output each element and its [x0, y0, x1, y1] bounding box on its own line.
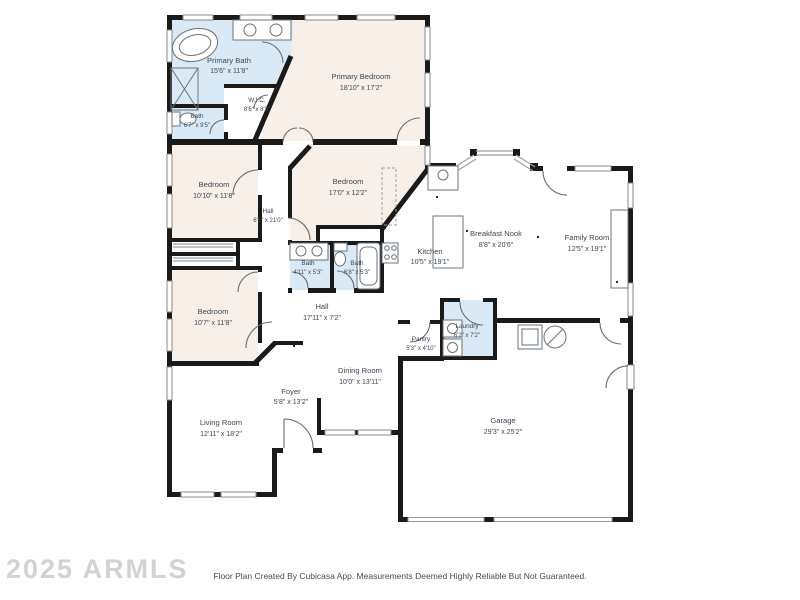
window — [167, 319, 172, 351]
label-laundry-dims: 6'2" x 7'2" — [454, 333, 480, 339]
label-family-room-name: Family Room — [565, 233, 610, 242]
toilet-icon — [172, 112, 180, 126]
garage-door — [408, 518, 484, 522]
window — [305, 15, 338, 20]
label-kitchen-dims: 10'5" x 19'1" — [411, 259, 450, 266]
label-bath-a-name: Bath — [301, 260, 315, 267]
window — [167, 194, 172, 228]
label-garage-name: Garage — [490, 416, 515, 425]
label-bath-b-name: Bath — [350, 260, 364, 267]
window — [357, 15, 395, 20]
label-foyer-dims: 5'8" x 13'2" — [274, 399, 309, 406]
label-hall-2-name: Hall — [315, 302, 328, 311]
service-door — [627, 365, 634, 389]
window — [575, 166, 611, 171]
window — [325, 430, 355, 435]
label-primary-bath-dims: 15'6" x 11'8" — [210, 68, 248, 75]
door-icon — [600, 323, 621, 344]
label-living-room-name: Living Room — [200, 418, 242, 427]
label-kitchen-name: Kitchen — [417, 247, 442, 256]
window — [181, 492, 214, 497]
label-pantry-name: Pantry — [412, 336, 431, 343]
window — [425, 27, 430, 60]
window — [183, 15, 213, 20]
label-bedroom-3-name: Bedroom — [198, 307, 229, 316]
footer-disclaimer: Floor Plan Created By Cubicasa App. Meas… — [0, 571, 800, 581]
garage-door — [494, 518, 612, 522]
label-foyer-name: Foyer — [281, 387, 301, 396]
label-laundry-name: Laundry — [455, 323, 479, 330]
label-breakfast-nook-dims: 8'8" x 20'6" — [479, 242, 514, 249]
toilet-icon — [334, 243, 347, 251]
room-bedroom-1 — [171, 144, 258, 238]
label-hall-2-dims: 17'11" x 7'2" — [303, 315, 341, 322]
label-bedroom-2-name: Bedroom — [333, 177, 364, 186]
label-bedroom-3-dims: 10'7" x 11'8" — [194, 320, 232, 327]
window — [628, 183, 633, 208]
floor-plan: Primary Bath 15'6" x 11'8" Bath 6'7" x 9… — [0, 0, 800, 600]
window — [167, 367, 172, 400]
label-breakfast-nook-name: Breakfast Nook — [470, 229, 522, 238]
window — [425, 146, 430, 165]
dryer-icon — [443, 339, 462, 356]
window — [628, 283, 633, 316]
label-bedroom-1-dims: 10'10" x 11'8" — [193, 193, 235, 200]
media-unit — [611, 210, 628, 288]
label-bath-small-dims: 6'7" x 9'5" — [184, 123, 210, 129]
label-wic-dims: 8'6" x 8'3" — [244, 107, 270, 113]
door-icon — [543, 171, 567, 195]
label-primary-bedroom-dims: 18'10" x 17'2" — [340, 85, 383, 92]
door-icon — [284, 419, 313, 448]
label-garage-dims: 29'3" x 25'2" — [484, 429, 523, 436]
label-bath-small-name: Bath — [190, 113, 204, 120]
label-primary-bath-name: Primary Bath — [207, 56, 251, 65]
window — [221, 492, 256, 497]
label-dining-room-name: Dining Room — [338, 366, 382, 375]
door-icon — [606, 366, 628, 388]
label-pantry-dims: 5'3" x 4'10" — [406, 346, 436, 352]
window — [167, 281, 172, 312]
window — [167, 30, 172, 62]
window — [167, 112, 172, 134]
floor-plan-page: Primary Bath 15'6" x 11'8" Bath 6'7" x 9… — [0, 0, 800, 600]
label-bedroom-2-dims: 17'0" x 12'2" — [329, 190, 368, 197]
label-hall-1-dims: 6'5" x 21'0" — [253, 218, 283, 224]
label-wic-name: W.I.C. — [248, 97, 266, 104]
label-bath-a-dims: 4'11" x 5'3" — [293, 270, 322, 276]
label-family-room-dims: 12'5" x 19'1" — [568, 246, 607, 253]
label-hall-1-name: Hall — [262, 208, 273, 215]
window — [240, 15, 272, 20]
window — [167, 154, 172, 186]
label-primary-bedroom-name: Primary Bedroom — [331, 72, 390, 81]
window — [358, 430, 391, 435]
label-bath-b-dims: 6'8" x 5'3" — [344, 270, 370, 276]
label-bedroom-1-name: Bedroom — [199, 180, 230, 189]
label-living-room-dims: 12'11" x 18'2" — [200, 431, 242, 438]
label-dining-room-dims: 10'0" x 13'11" — [339, 379, 381, 386]
window — [425, 73, 430, 107]
